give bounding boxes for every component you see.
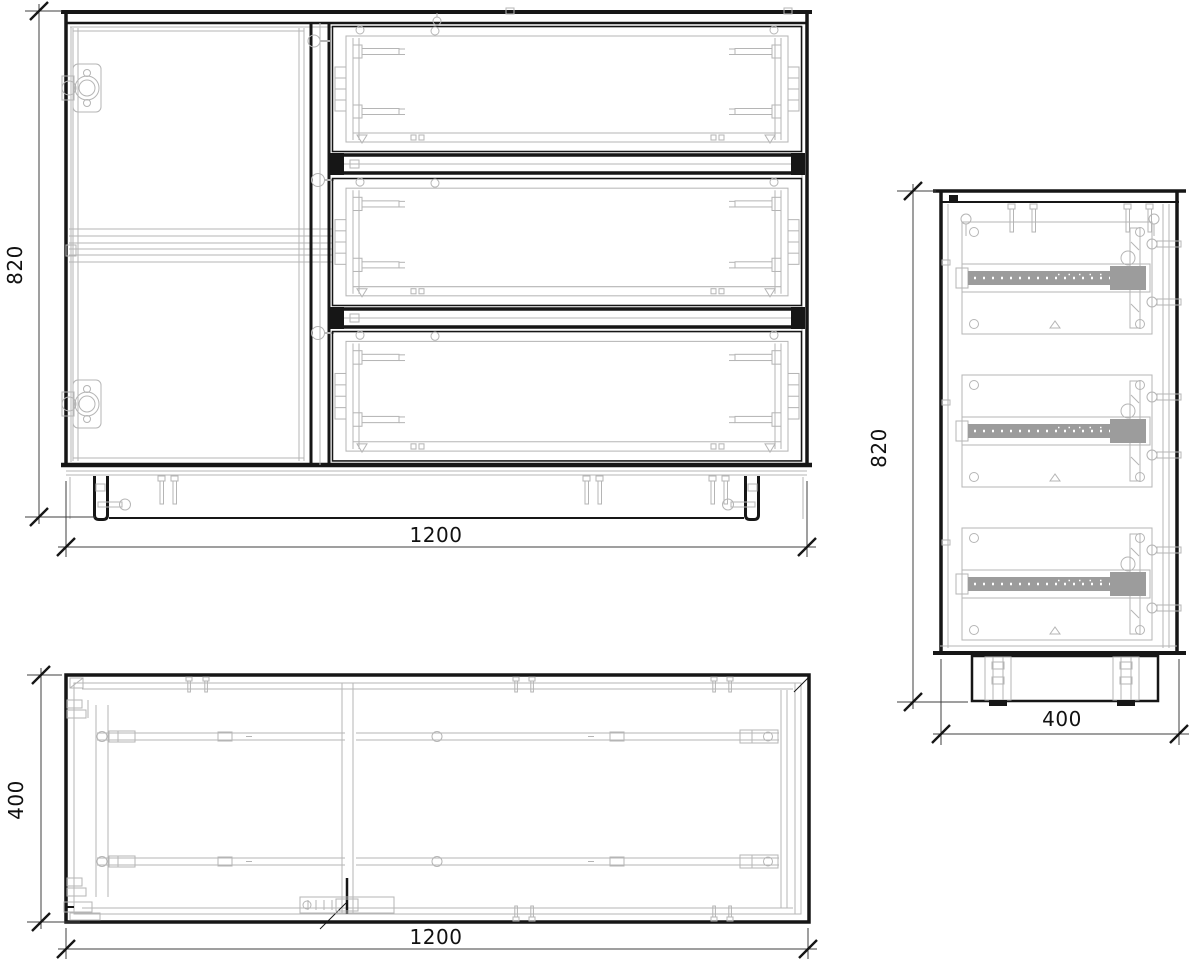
front-carcass <box>61 8 812 475</box>
front-drawer-rail-1 <box>330 153 805 175</box>
side-height-dimension: 820 <box>867 182 968 711</box>
side-depth-dim-label: 400 <box>1042 707 1082 731</box>
front-height-dimension: 820 <box>3 2 95 526</box>
front-drawer-3 <box>333 331 802 461</box>
plan-rails <box>97 730 779 868</box>
front-leg-left <box>95 476 131 520</box>
plan-width-dim-label: 1200 <box>410 925 463 949</box>
front-center-divider <box>308 23 334 465</box>
side-drawer-slide-2 <box>956 375 1181 487</box>
side-drawer-slide-3 <box>956 528 1181 640</box>
door-hinge-bottom-icon <box>62 380 101 428</box>
side-view: 820 400 <box>867 182 1189 745</box>
plan-hinge-top-icon <box>67 700 88 718</box>
front-plinth <box>70 476 803 520</box>
door-hinge-top-icon <box>62 64 101 112</box>
plinth-screws <box>158 476 729 504</box>
plan-width-dimension: 1200 <box>57 925 817 959</box>
front-height-dim-label: 820 <box>3 245 27 285</box>
front-drawer-2 <box>333 178 802 305</box>
drawing-canvas: 820 1200 <box>0 0 1200 963</box>
plan-depth-dim-label: 400 <box>4 780 28 820</box>
plan-depth-dimension: 400 <box>4 666 80 931</box>
front-width-dim-label: 1200 <box>410 523 463 547</box>
front-door <box>62 28 333 461</box>
front-drawer-1 <box>333 26 802 152</box>
side-leg-back <box>1113 657 1139 706</box>
hidden-shelf-lines <box>66 229 333 262</box>
side-leg-front <box>985 657 1011 706</box>
front-drawer-rail-2 <box>330 307 805 329</box>
cabinet-technical-drawing: 820 1200 <box>0 0 1200 963</box>
side-drawer-slide-1 <box>956 222 1181 334</box>
side-plinth <box>972 656 1158 706</box>
plan-view: 400 1200 <box>4 666 817 959</box>
front-view: 820 1200 <box>3 2 816 557</box>
side-top-screws <box>961 204 1159 236</box>
plan-carcass <box>66 675 809 929</box>
side-height-dim-label: 820 <box>867 428 891 468</box>
plan-edge-screws <box>186 677 733 921</box>
